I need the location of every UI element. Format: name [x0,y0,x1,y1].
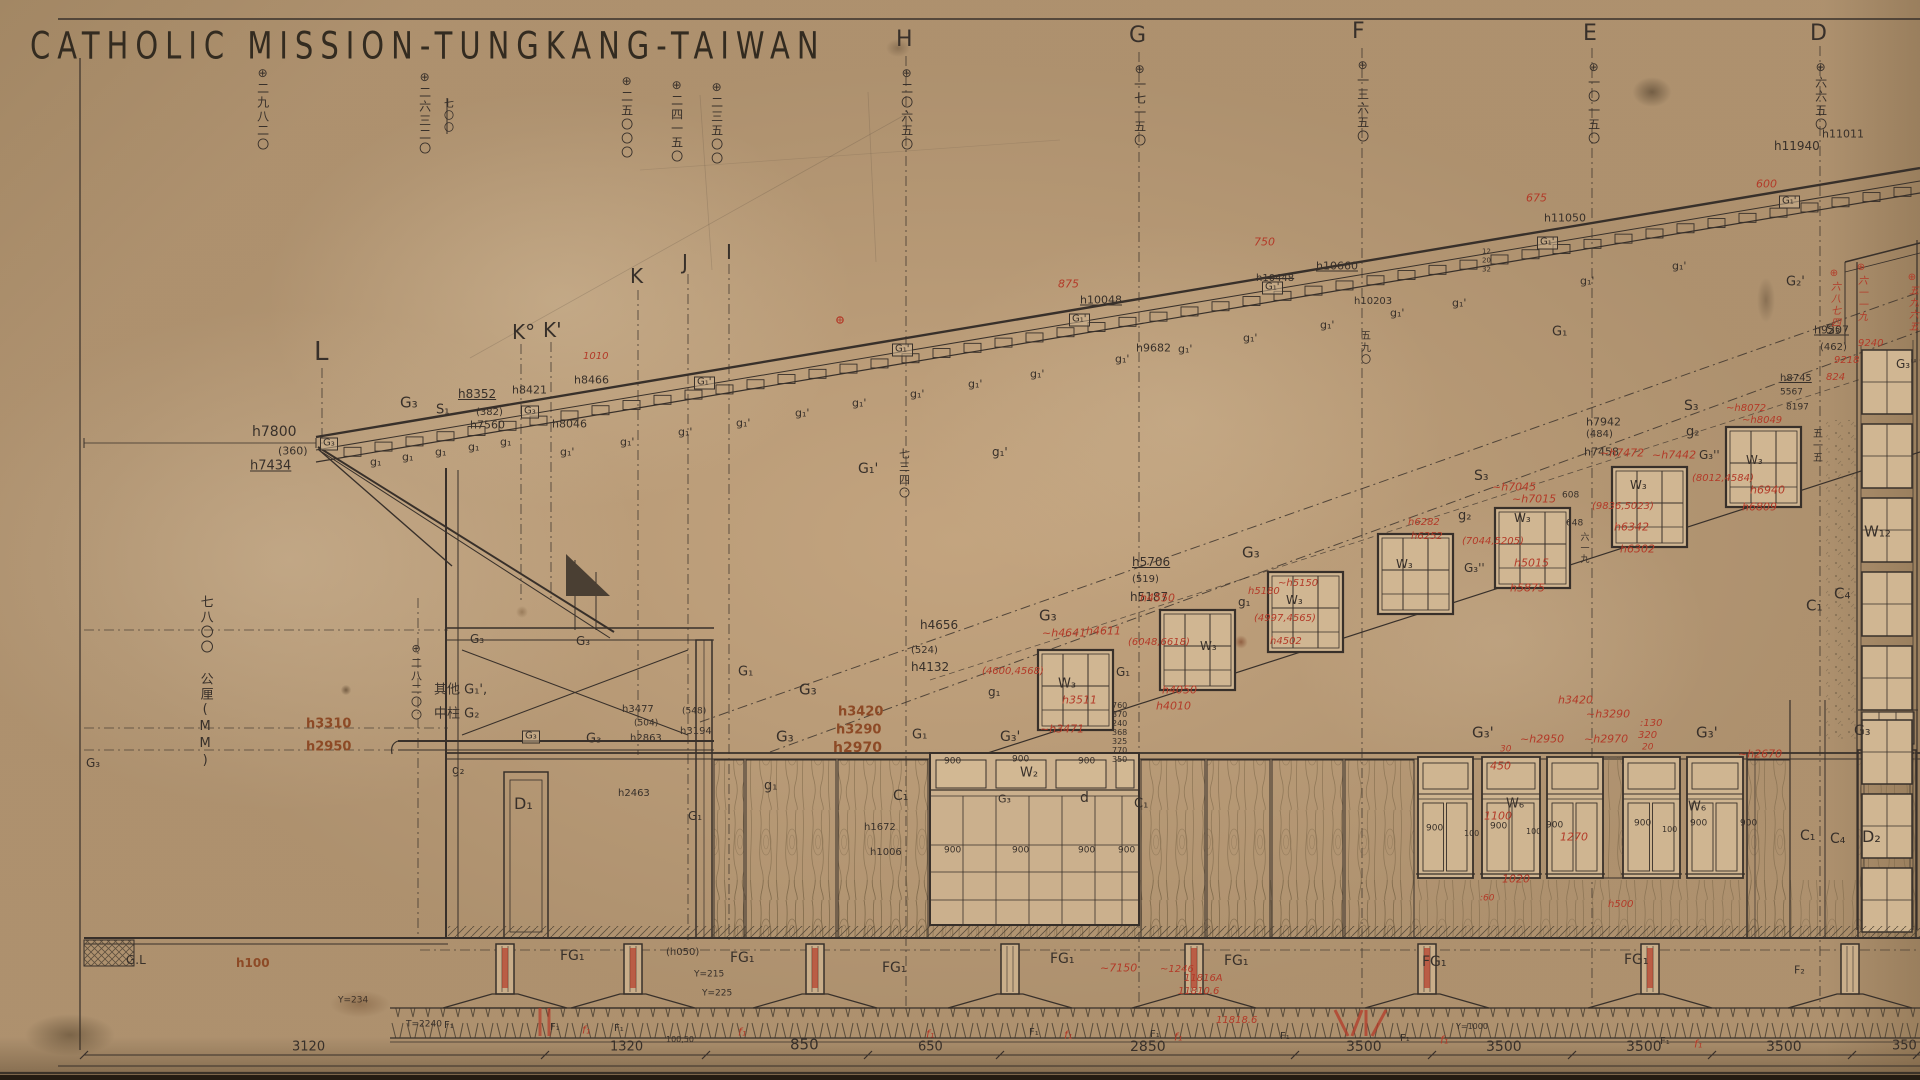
drawing-label: F₁ [614,1024,624,1034]
drawing-label: 240 [1112,720,1127,728]
red-elevation-label: h500 [1608,900,1633,910]
drawing-label: G₃ [776,730,794,745]
red-elevation-label: h6252 [1411,532,1443,542]
red-elevation-label: f₁ [1694,1039,1702,1050]
drawing-label: 其他 G₁', [434,684,487,697]
drawing-label: F₁ [1029,1028,1039,1038]
drawing-label: g₂ [1686,426,1699,439]
drawing-label: 中柱 G₂ [434,708,479,721]
drawing-label: 900 [1634,820,1651,829]
drawing-label: 900 [944,847,961,856]
annotation-layer: ⊕二九八二〇⊕二六三二〇七〇〇⊕二五〇〇〇⊕二四一五〇⊕二三五〇〇H⊕二〇六五〇… [0,0,1920,1080]
drawing-label: 900 [1012,756,1029,765]
drawing-label: h8466 [574,375,609,386]
red-elevation-label: (8012,4584) [1692,474,1754,484]
drawing-label: g₁' [992,446,1008,458]
drawing-label: h9682 [1136,343,1171,354]
drawing-label: g₁' [1320,320,1334,331]
drawing-label: C₄ [1834,587,1851,602]
drawing-label: 100 [1464,830,1479,838]
drawing-label: G₁ [912,729,927,742]
drawing-label: h11940 [1774,140,1820,152]
vertical-dimension-label: ⊕一七一五〇 [1133,62,1146,148]
red-elevation-label: ~h8072 [1726,404,1766,414]
drawing-label: g₁' [1580,276,1594,287]
drawing-label: FG₁ [1050,952,1075,966]
drawing-label: g₁' [795,408,809,419]
red-elevation-label: f₁ [1064,1030,1072,1041]
red-elevation-label: h6342 [1614,522,1649,533]
drawing-label: W₆ [1688,801,1706,814]
red-elevation-label: 1020 [1502,874,1530,885]
red-elevation-label: (9836,5023) [1592,502,1654,512]
drawing-label: (504) [634,720,658,729]
red-elevation-label: 1010 [583,352,608,362]
drawing-label: G₃ [576,635,590,647]
red-elevation-label: f₁ [738,1027,746,1038]
drawing-label: g₁ [1238,596,1250,608]
drawing-label: h8421 [512,385,547,396]
vertical-dimension-label: ⊕一〇一五〇 [1587,60,1600,146]
red-elevation-label: h3420 [1558,695,1593,706]
drawing-label: 608 [1562,492,1579,501]
drawing-label: h10203 [1354,297,1392,307]
vertical-dimension-label: ⊕一三六五〇 [1356,58,1369,144]
drawing-label: h3420 [838,706,883,719]
red-elevation-label: h4611 [1086,626,1121,637]
drawing-label: h10660 [1316,261,1358,272]
red-elevation-label: ~h7472 [1600,448,1644,459]
red-elevation-label: 30 [1500,746,1511,755]
drawing-label: g₁' [620,437,634,448]
drawing-label: 3120 [292,1041,325,1054]
drawing-label: h100 [236,957,270,969]
red-elevation-label: h4050 [1162,685,1197,696]
drawing-label: 5567 [1780,389,1803,398]
drawing-label: F₁ [550,1023,560,1033]
drawing-label: 350 [1892,1040,1917,1053]
drawing-label: D₂ [1862,829,1881,845]
drawing-label: FG₁ [1422,955,1447,969]
drawing-label: 900 [1490,823,1507,832]
drawing-label: FG₁ [882,961,907,975]
drawing-label: 100 [1662,826,1677,834]
vertical-dimension-label: ⊕二〇六五〇 [900,66,913,152]
red-elevation-label: ~h3471 [1040,724,1084,735]
drawing-label: g₁' [1672,261,1686,272]
drawing-label: h2463 [618,789,650,799]
drawing-label: (548) [682,708,706,717]
drawing-label: W₃ [1396,558,1413,570]
drawing-label: S₃ [1684,399,1699,413]
drawing-label: (519) [1132,575,1159,585]
drawing-label: G₂' [1786,276,1805,289]
drawing-label: g₁' [910,389,924,400]
drawing-label: G₃ [1854,724,1870,738]
red-elevation-label: 1270 [1560,832,1588,843]
drawing-label: h2950 [306,741,351,754]
drawing-label: G₁' [694,377,715,390]
drawing-label: F₁ [444,1021,454,1031]
drawing-label: g₁' [736,418,750,429]
drawing-label: 8197 [1786,404,1809,413]
drawing-label: G₁ [688,810,702,822]
drawing-label: 900 [1118,847,1135,856]
drawing-label: h2970 [833,741,882,755]
red-elevation-label: 875 [1058,279,1079,290]
red-elevation-label: ~h2950 [1520,734,1564,745]
drawing-label: 900 [1078,758,1095,767]
drawing-label: g₁ [435,447,446,458]
drawing-label: 770 [1112,747,1127,755]
vertical-dimension-label: ⊕五九六五 [1906,272,1917,333]
drawing-label: 3500 [1626,1040,1662,1054]
red-elevation-label: 11816A [1184,974,1223,984]
vertical-dimension-label: 六一九 [1578,532,1587,565]
drawing-label: g₁' [1243,333,1257,344]
drawing-label: E [1583,23,1597,45]
drawing-label: W₃ [1286,594,1303,606]
drawing-label: 20 [1482,258,1491,265]
drawing-label: 368 [1112,729,1127,737]
drawing-label: 325 [1112,738,1127,746]
drawing-label: L [314,339,329,365]
red-elevation-label: h4502 [1270,637,1302,647]
red-elevation-label: h4010 [1156,701,1191,712]
red-elevation-label: 675 [1526,193,1547,204]
drawing-label: 650 [918,1041,943,1054]
drawing-label: h11011 [1822,129,1864,140]
drawing-label: 100 [1526,828,1541,836]
drawing-label: h8046 [552,419,587,430]
vertical-dimension-label: 五九〇 [1358,330,1369,366]
drawing-label: G₃'' [1464,562,1485,574]
drawing-label: W₁₂ [1864,525,1891,540]
red-elevation-label: h3511 [1062,695,1097,706]
drawing-label: G₁' [1537,237,1558,250]
drawing-label: 900 [1426,825,1443,834]
drawing-label: K [630,266,643,286]
drawing-label: h7560 [470,420,505,431]
drawing-label: G₃ [1242,546,1260,561]
red-elevation-label: 9218 [1834,356,1859,366]
red-elevation-label: f₁ [926,1029,934,1040]
red-elevation-label: ~h4641 [1042,628,1086,639]
vertical-dimension-label: 七〇〇 [441,98,452,134]
vertical-dimension-label: ⊕二八二〇〇 [410,642,422,722]
red-elevation-label: ~h3290 [1586,709,1630,720]
vertical-dimension-label: ⊕二五〇〇〇 [620,74,633,160]
drawing-label: g₁ [370,457,381,468]
drawing-label: 1320 [610,1041,643,1054]
drawing-label: 900 [1546,822,1563,831]
drawing-label: W₃ [1514,512,1531,524]
red-elevation-label: 600 [1756,179,1777,190]
drawing-label: 850 [790,1038,819,1053]
drawing-label: G₁' [1069,314,1090,327]
red-elevation-label: :60 [1480,895,1494,904]
drawing-label: K° [512,322,535,342]
red-elevation-label: 20 [1642,744,1653,753]
drawing-label: 900 [944,758,961,767]
drawing-label: C₁ [1800,829,1815,843]
red-elevation-label: 11818.6 [1216,1016,1257,1026]
drawing-label: d [1080,791,1089,805]
drawing-label: g₂ [1458,510,1471,523]
red-elevation-label: 750 [1254,237,1275,248]
drawing-label: W₃ [1200,640,1217,652]
drawing-label: C₄ [1830,832,1845,846]
drawing-label: S₁ [436,404,449,417]
red-elevation-label: 9240 [1858,339,1883,349]
red-elevation-label: (6048,6618) [1128,638,1190,648]
drawing-label: h8352 [458,388,496,400]
drawing-label: FG₁ [1624,953,1649,967]
vertical-dimension-label: 五一五 [1810,428,1821,464]
drawing-label: 350 [1112,756,1127,764]
drawing-label: h7942 [1586,417,1621,428]
drawing-label: 760 [1112,702,1127,710]
drawing-label: G₃ [799,683,817,698]
drawing-label: C₁ [1806,599,1823,614]
drawing-label: g₁ [500,437,511,448]
drawing-label: g₁ [402,452,413,463]
drawing-label: F₂ [1794,965,1805,976]
drawing-label: g₁' [1452,298,1466,309]
drawing-label: FG₁ [1224,954,1249,968]
drawing-label: (360) [278,446,308,457]
drawing-label: h8745 [1780,374,1812,384]
drawing-label: h3194 [680,727,712,737]
drawing-label: W₃ [1058,678,1076,691]
drawing-label: g₁ [988,686,1000,698]
drawing-label: h4132 [911,661,949,673]
blueprint-sheet: CATHOLIC MISSION-TUNGKANG-TAIWAN ⊕二九八二〇⊕… [0,0,1920,1080]
drawing-label: W₃ [1746,454,1763,466]
drawing-label: G₁' [1262,282,1283,295]
drawing-label: F₁ [1280,1032,1290,1042]
drawing-label: g₁' [1390,308,1404,319]
red-elevation-label: 320 [1638,731,1657,741]
red-elevation-label: ~h7045 [1492,482,1536,493]
drawing-label: g₁' [1030,369,1044,380]
drawing-label: G₃'' [1699,449,1720,461]
drawing-label: T=2240 [406,1021,442,1030]
drawing-label: 100,50 [666,1036,694,1044]
vertical-dimension-label: 七八〇〇 公厘(MM) [198,595,212,770]
drawing-label: 900 [1012,847,1029,856]
red-elevation-label: f₁ [1440,1035,1448,1046]
drawing-label: 3500 [1766,1040,1802,1054]
drawing-label: (382) [476,408,503,418]
drawing-label: h7800 [252,425,297,439]
drawing-label: F [1352,21,1365,43]
drawing-label: D₁ [514,796,533,812]
red-elevation-label: (4600,4568) [982,667,1044,677]
drawing-label: 32 [1482,267,1491,274]
drawing-label: FG₁ [730,951,755,965]
drawing-label: (462) [1820,343,1847,353]
drawing-label: G.L [126,954,146,966]
drawing-label: G₃ [400,396,418,411]
drawing-label: G₃' [1696,726,1718,741]
red-elevation-label: :130 [1640,719,1662,729]
drawing-label: g₁ [468,442,479,453]
drawing-label: g₁' [678,427,692,438]
drawing-label: I [726,242,732,262]
drawing-label: Y=234 [338,997,368,1006]
drawing-label: g₁ [764,780,777,793]
drawing-label: h10048 [1080,295,1122,306]
drawing-label: h2863 [630,734,662,744]
vertical-dimension-label: ⊕二六三二〇 [418,70,431,156]
drawing-label: G₃ [521,406,539,419]
drawing-label: g₂ [452,764,464,776]
drawing-label: h5706 [1132,556,1170,568]
drawing-label: K' [543,320,562,340]
drawing-label: G₃ [320,438,338,451]
red-elevation-label: h5015 [1514,558,1549,569]
drawing-label: 12 [1482,249,1491,256]
drawing-label: G₃ [470,633,484,645]
red-elevation-label: h6302 [1620,544,1655,555]
drawing-label: G₁' [858,462,878,476]
drawing-label: g₁' [1178,344,1192,355]
drawing-label: h4656 [920,619,958,631]
red-elevation-label: h6809 [1742,502,1777,513]
drawing-label: FG₁ [560,949,585,963]
drawing-label: 2850 [1130,1040,1166,1054]
red-elevation-label: ~h8049 [1742,416,1782,426]
drawing-label: G₁' [1779,196,1800,209]
red-elevation-label: (7044,5205) [1462,537,1524,547]
red-elevation-label: ~h2970 [1584,734,1628,745]
drawing-label: g₁' [852,398,866,409]
red-elevation-label: f₁ [582,1025,590,1036]
drawing-label: 900 [1078,847,1095,856]
drawing-label: W₃ [1630,479,1647,491]
drawing-label: G₃ [586,733,601,746]
drawing-label: Y=215 [694,971,724,980]
red-elevation-label: ~7150 [1100,963,1137,974]
red-elevation-label: 824 [1826,373,1845,383]
vertical-dimension-label: ⊕二九八二〇 [256,66,269,152]
drawing-label: H [896,29,913,51]
drawing-label: g₁' [968,379,982,390]
vertical-dimension-label: ⊕六八七四 [1828,268,1839,329]
drawing-label: G₃'' [1896,358,1917,370]
drawing-label: h1006 [870,848,902,858]
drawing-label: G₃ [86,757,100,769]
drawing-label: h7434 [250,460,291,473]
drawing-label: G₃ [998,794,1011,805]
vertical-dimension-label: ⊕六六五〇 [1814,60,1827,132]
drawing-label: h1672 [864,823,896,833]
drawing-label: W₂ [1020,767,1038,780]
drawing-label: g₁' [1115,354,1129,365]
red-elevation-label: 450 [1490,761,1511,772]
red-elevation-label: ~h7015 [1512,494,1556,505]
drawing-label: C₁ [1134,798,1148,811]
drawing-label: 900 [1740,820,1757,829]
drawing-label: (h050) [666,948,699,958]
drawing-label: G [1129,25,1146,47]
red-elevation-label: ~h2670 [1738,749,1782,760]
drawing-label: 648 [1566,520,1583,529]
drawing-label: D [1810,23,1827,45]
red-elevation-label: ~h7442 [1652,450,1696,461]
drawing-label: G₁ [1552,326,1567,339]
drawing-label: G₁ [1116,666,1130,678]
vertical-dimension-label: 七三四〇 [898,448,910,500]
drawing-label: h3477 [622,705,654,715]
drawing-label: C₁ [893,789,908,803]
red-elevation-label: h5875 [1510,583,1545,594]
drawing-label: G₁' [892,344,913,357]
vertical-dimension-label: ⊕二四一五〇 [670,78,683,164]
drawing-label: Y=225 [702,990,732,999]
drawing-label: 370 [1112,711,1127,719]
drawing-label: h3290 [836,724,881,737]
drawing-label: S₃ [1474,469,1489,483]
drawing-label: F₁ [1400,1034,1410,1044]
drawing-label: G₃ [1039,609,1057,624]
red-elevation-label: h6282 [1408,518,1440,528]
drawing-label: G₃ [522,731,540,744]
drawing-label: h11050 [1544,213,1586,224]
red-elevation-label: h6940 [1750,485,1785,496]
vertical-dimension-label: ⊕六一一九 [1855,262,1866,323]
drawing-label: J [682,252,688,272]
drawing-label: 3500 [1346,1040,1382,1054]
red-elevation-label: (4997,4565) [1254,614,1316,624]
red-elevation-label: 11810.6 [1178,987,1219,997]
red-elevation-label: h5180 [1248,587,1280,597]
drawing-label: h3310 [306,718,351,731]
red-elevation-label: f₁ [1174,1032,1182,1043]
vertical-dimension-label: ⊕二三五〇〇 [710,80,723,166]
drawing-label: 3500 [1486,1040,1522,1054]
drawing-label: G₃' [1000,730,1020,744]
red-elevation-label: ~h5150 [1278,579,1318,589]
drawing-label: 900 [1690,820,1707,829]
drawing-label: G₃' [1472,726,1494,741]
drawing-label: g₁' [560,447,574,458]
drawing-label: (484) [1586,430,1613,440]
red-elevation-label: h4550 [1140,593,1175,604]
drawing-label: (524) [911,646,938,656]
drawing-label: G₁ [738,666,753,679]
red-elevation-label: 1100 [1484,811,1512,822]
drawing-label: Y=1000 [1456,1023,1488,1031]
